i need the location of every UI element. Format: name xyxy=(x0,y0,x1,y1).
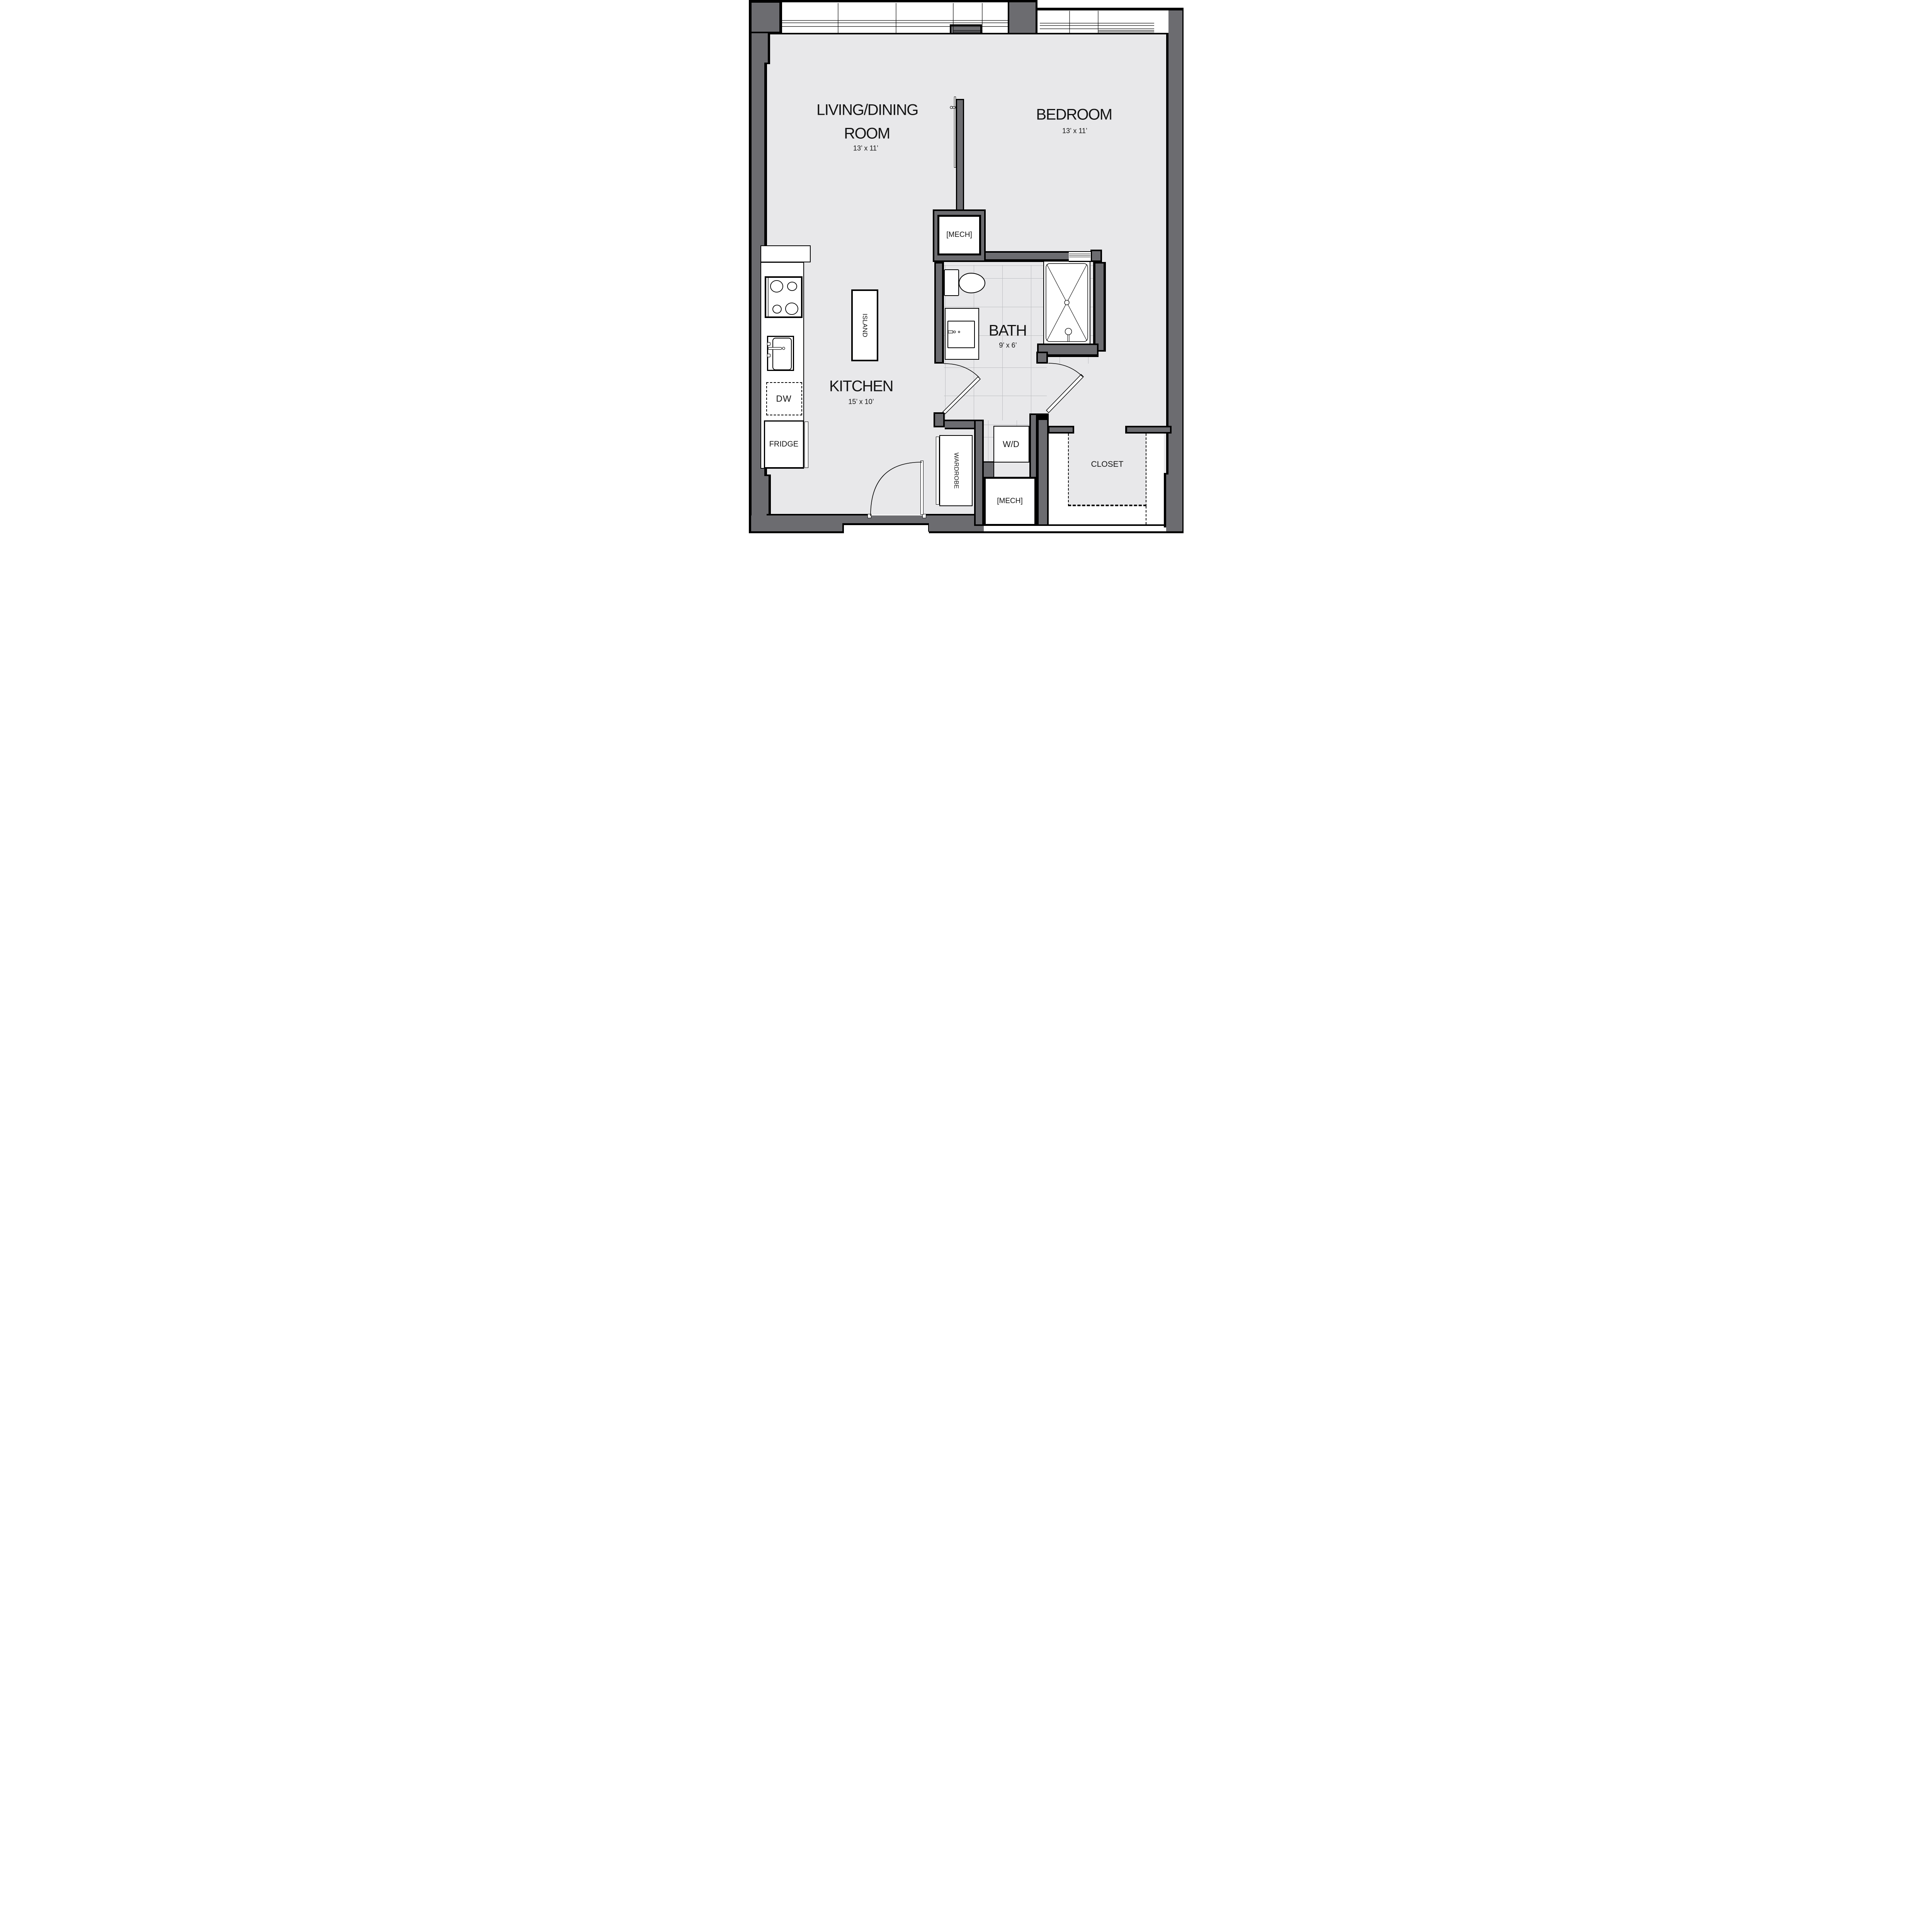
bath-top-wall-core xyxy=(986,253,1069,259)
bottom-wall-entry-outer-edge xyxy=(842,523,930,525)
bedroom-label: BEDROOM xyxy=(1036,106,1112,124)
bath-se-corner-core xyxy=(1038,353,1046,362)
kitchen-sink-basin xyxy=(772,338,792,370)
toilet-bowl xyxy=(959,273,985,293)
left-wall-outer-edge xyxy=(749,0,752,533)
right-wall-lower-inner-edge xyxy=(1164,474,1166,527)
top-wall-duct-core xyxy=(951,26,980,33)
window-pillar-core xyxy=(1009,2,1036,33)
bath-label: BATH xyxy=(989,322,1027,340)
fridge-label: FRIDGE xyxy=(769,440,799,449)
kitchen-upper-counter xyxy=(760,245,811,262)
stove xyxy=(765,276,803,318)
fridge-door xyxy=(804,422,808,468)
bottom-wall-entry-step-left xyxy=(842,523,844,532)
living-room-label-line2: ROOM xyxy=(844,125,889,143)
bath-dims: 9’ x 6’ xyxy=(999,342,1017,350)
closet-label: CLOSET xyxy=(1091,460,1123,469)
entry-jamb-left xyxy=(867,514,871,518)
right-wall-core xyxy=(1168,10,1182,532)
window-right xyxy=(1040,10,1154,33)
hall-sw-wall-core xyxy=(935,414,943,426)
left-wall-upper-core xyxy=(752,33,768,64)
mech-upper-label: [MECH] xyxy=(946,231,972,239)
left-wall-lower-inner-edge xyxy=(769,474,771,516)
living-room-label-line1: LIVING/DINING xyxy=(816,102,918,119)
bottom-wall-outer-edge-left xyxy=(749,531,844,533)
washer-dryer-label: W/D xyxy=(1003,439,1019,449)
wardrobe-nook-right-core xyxy=(976,421,982,524)
left-wall-upper-inner-edge xyxy=(768,33,770,64)
mech-lower-label: [MECH] xyxy=(997,497,1023,505)
top-right-wall-outer-edge xyxy=(1037,8,1184,10)
closet-dashed-extension xyxy=(1146,506,1147,524)
floor-plan: DW FRIDGE ISLAND W/D [MECH] [MECH] WARDR… xyxy=(749,0,1184,533)
kitchen-label: KITCHEN xyxy=(829,378,893,395)
living-room-dims: 13’ x 11’ xyxy=(853,145,878,153)
bedroom-dims: 13’ x 11’ xyxy=(1062,127,1087,135)
hall-east-wall-core xyxy=(1039,420,1047,524)
closet-south-void-top-edge xyxy=(1036,524,1165,526)
tub-deck xyxy=(1069,251,1091,262)
closet-stub-right-core xyxy=(1127,427,1170,432)
bath-ne-corner-core xyxy=(1092,251,1100,260)
dishwasher-label: DW xyxy=(776,394,791,404)
bedroom-sliding-door xyxy=(954,97,956,168)
closet-stub-left-core xyxy=(1049,427,1073,432)
wardrobe-sliding-door xyxy=(936,437,939,505)
kitchen-dims: 15’ x 10’ xyxy=(848,398,874,406)
bottom-wall-outer-edge-right xyxy=(929,531,1184,533)
bath-right-wall-core xyxy=(1095,264,1104,350)
bath-vanity-basin xyxy=(947,321,975,348)
divider-wall-core xyxy=(957,100,963,213)
toilet-tank xyxy=(944,269,959,296)
wardrobe-label: WARDROBE xyxy=(952,452,959,489)
right-wall-lower-core xyxy=(1166,474,1182,531)
tub-shower xyxy=(1043,261,1090,344)
closet-door-post xyxy=(1037,413,1049,418)
island-label: ISLAND xyxy=(861,313,869,337)
window-right-inner-edge xyxy=(1037,33,1166,34)
bottom-wall-core-entry xyxy=(843,515,929,523)
left-wall-lower-core xyxy=(764,476,769,515)
top-left-corner-core xyxy=(752,3,779,32)
closet-dashed-area xyxy=(1068,434,1146,506)
bottom-wall-core-left xyxy=(751,515,843,531)
bath-left-wall-core xyxy=(936,264,942,362)
entry-door-leaf xyxy=(920,461,923,515)
hall-tile-floor xyxy=(944,364,1047,420)
right-wall-inner-edge xyxy=(1166,33,1168,473)
